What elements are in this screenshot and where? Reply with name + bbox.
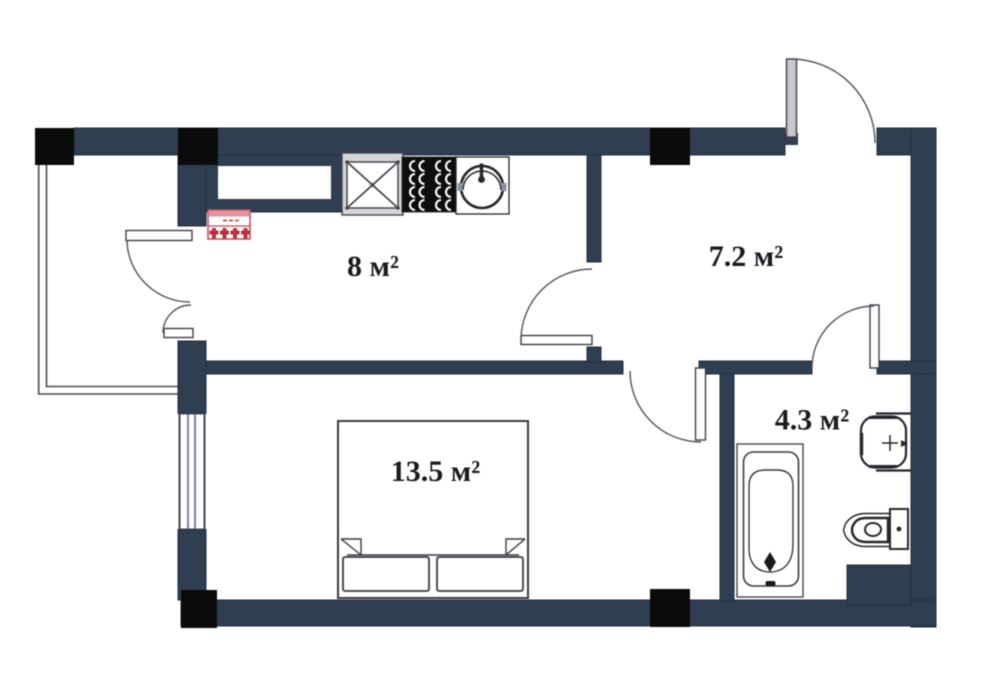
svg-text:8 м²: 8 м²	[347, 250, 399, 283]
svg-text:4.3 м²: 4.3 м²	[775, 404, 849, 437]
svg-text:7.2 м²: 7.2 м²	[709, 240, 783, 273]
svg-text:13.5 м²: 13.5 м²	[391, 455, 480, 488]
